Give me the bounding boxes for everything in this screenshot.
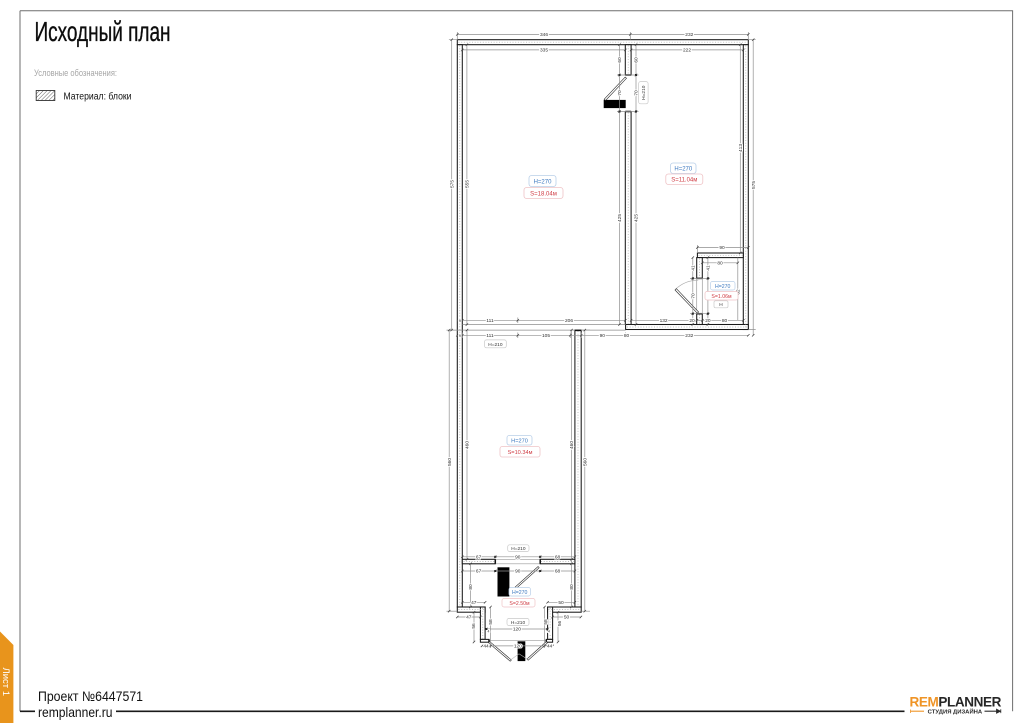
svg-text:80: 80 xyxy=(624,333,630,339)
svg-text:41: 41 xyxy=(706,265,712,271)
svg-text:47: 47 xyxy=(471,600,477,606)
svg-text:67: 67 xyxy=(476,569,482,575)
svg-text:335: 335 xyxy=(540,48,548,54)
svg-text:47: 47 xyxy=(466,615,472,621)
svg-text:H=270: H=270 xyxy=(674,167,693,173)
svg-text:575: 575 xyxy=(751,181,757,189)
svg-text:346: 346 xyxy=(540,32,548,38)
svg-text:222: 222 xyxy=(683,48,691,54)
svg-text:111: 111 xyxy=(486,333,494,339)
svg-text:44: 44 xyxy=(483,644,489,650)
svg-text:425: 425 xyxy=(634,214,640,222)
svg-text:68: 68 xyxy=(555,555,561,561)
svg-text:460: 460 xyxy=(569,441,575,449)
svg-text:60: 60 xyxy=(634,57,640,63)
svg-text:68: 68 xyxy=(555,569,561,575)
svg-text:555: 555 xyxy=(465,180,471,188)
svg-text:50: 50 xyxy=(558,600,564,606)
svg-text:425: 425 xyxy=(617,214,623,222)
svg-text:H=210: H=210 xyxy=(488,342,503,348)
svg-text:70: 70 xyxy=(617,90,623,96)
svg-text:Проект №6447571: Проект №6447571 xyxy=(38,689,143,704)
svg-text:remplanner.ru: remplanner.ru xyxy=(38,704,113,720)
svg-text:232: 232 xyxy=(685,32,693,38)
svg-text:H=270: H=270 xyxy=(534,179,553,185)
svg-text:90: 90 xyxy=(719,245,725,251)
svg-text:4: 4 xyxy=(548,629,550,633)
svg-text:560: 560 xyxy=(447,458,453,466)
svg-text:50: 50 xyxy=(564,615,570,621)
svg-text:80: 80 xyxy=(569,584,575,590)
svg-text:9: 9 xyxy=(459,319,461,323)
svg-text:56: 56 xyxy=(557,621,563,627)
svg-text:105: 105 xyxy=(542,333,550,339)
svg-text:Исходный план: Исходный план xyxy=(35,16,171,47)
svg-text:H: H xyxy=(719,302,723,308)
svg-text:560: 560 xyxy=(582,458,588,466)
svg-text:58: 58 xyxy=(488,619,494,625)
svg-text:41: 41 xyxy=(690,265,696,271)
svg-text:H=270: H=270 xyxy=(511,439,528,445)
svg-text:20: 20 xyxy=(689,318,695,324)
svg-text:80: 80 xyxy=(722,318,728,324)
svg-text:S=2.50м: S=2.50м xyxy=(509,601,530,607)
svg-text:67: 67 xyxy=(476,555,482,561)
svg-text:S=10.34м: S=10.34м xyxy=(508,450,533,456)
svg-text:20: 20 xyxy=(705,318,711,324)
svg-text:СТУДИЯ ДИЗАЙНА: СТУДИЯ ДИЗАЙНА xyxy=(928,707,983,715)
svg-text:80: 80 xyxy=(468,584,474,590)
svg-text:Лист 1: Лист 1 xyxy=(0,668,11,697)
svg-text:575: 575 xyxy=(449,180,455,188)
svg-text:58: 58 xyxy=(543,619,549,625)
svg-text:70: 70 xyxy=(690,293,696,299)
svg-text:120: 120 xyxy=(514,644,522,650)
svg-text:413: 413 xyxy=(738,144,744,152)
svg-text:232: 232 xyxy=(685,333,693,339)
svg-text:S=11.04м: S=11.04м xyxy=(671,178,697,184)
svg-text:H=270: H=270 xyxy=(512,590,528,596)
svg-text:44: 44 xyxy=(547,644,553,650)
svg-text:S=1.06м: S=1.06м xyxy=(711,294,732,300)
svg-text:132: 132 xyxy=(660,318,668,324)
svg-text:206: 206 xyxy=(565,318,573,324)
svg-text:Материал: блоки: Материал: блоки xyxy=(64,90,132,102)
svg-text:90: 90 xyxy=(515,569,521,575)
svg-text:120: 120 xyxy=(513,627,521,633)
svg-text:H=210: H=210 xyxy=(511,620,526,626)
svg-text:H=270: H=270 xyxy=(715,284,731,290)
svg-text:460: 460 xyxy=(465,441,471,449)
svg-text:80: 80 xyxy=(717,261,723,267)
svg-text:4: 4 xyxy=(488,629,490,633)
svg-text:H=210: H=210 xyxy=(511,546,526,552)
svg-text:90: 90 xyxy=(600,333,606,339)
svg-text:60: 60 xyxy=(617,57,623,63)
svg-text:H=210: H=210 xyxy=(641,85,647,100)
svg-text:90: 90 xyxy=(515,555,521,561)
svg-text:9: 9 xyxy=(459,334,461,338)
svg-text:REMPLANNER: REMPLANNER xyxy=(910,694,1002,709)
svg-text:S=18.04м: S=18.04м xyxy=(530,191,557,197)
svg-text:56: 56 xyxy=(471,623,477,629)
svg-text:111: 111 xyxy=(486,318,494,324)
svg-text:Условные обозначения:: Условные обозначения: xyxy=(34,67,117,78)
